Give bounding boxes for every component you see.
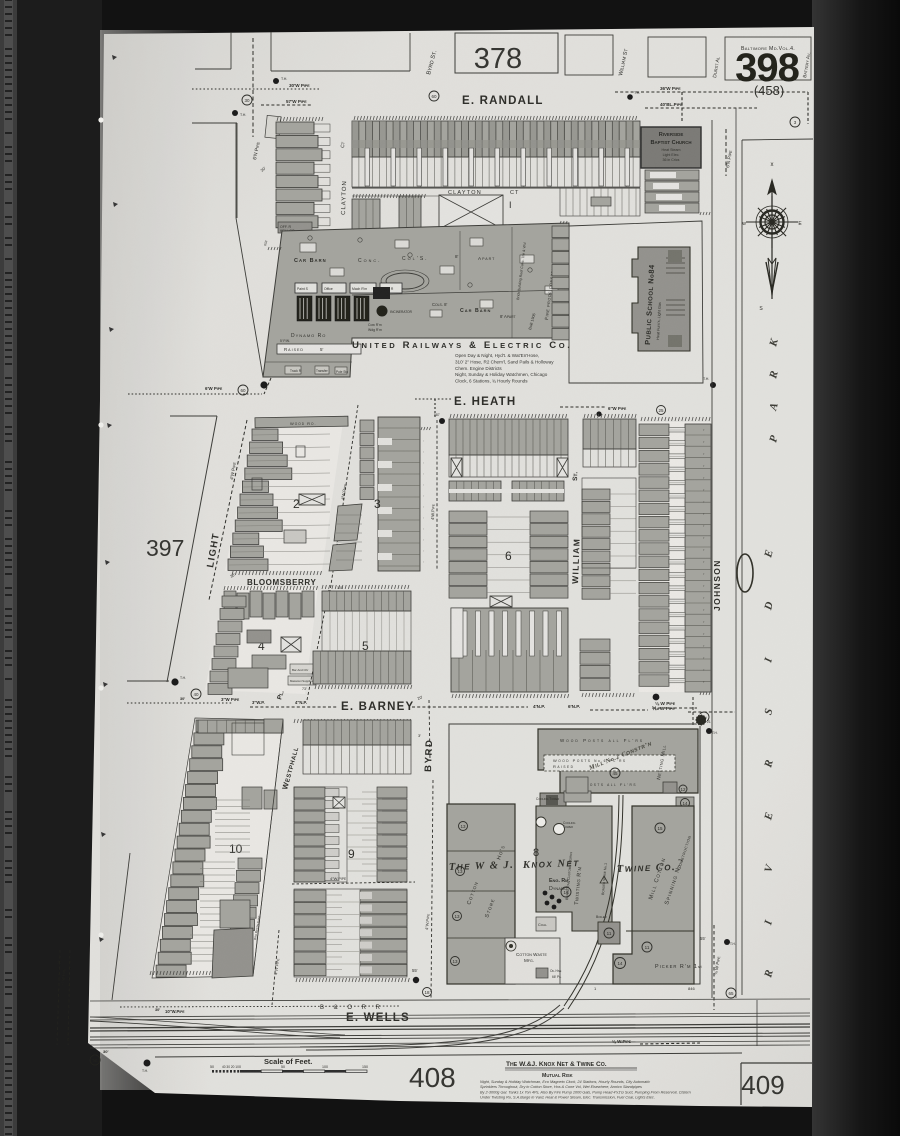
svg-text:30: 30 [92,1058,98,1063]
svg-text:20′: 20′ [57,960,61,965]
